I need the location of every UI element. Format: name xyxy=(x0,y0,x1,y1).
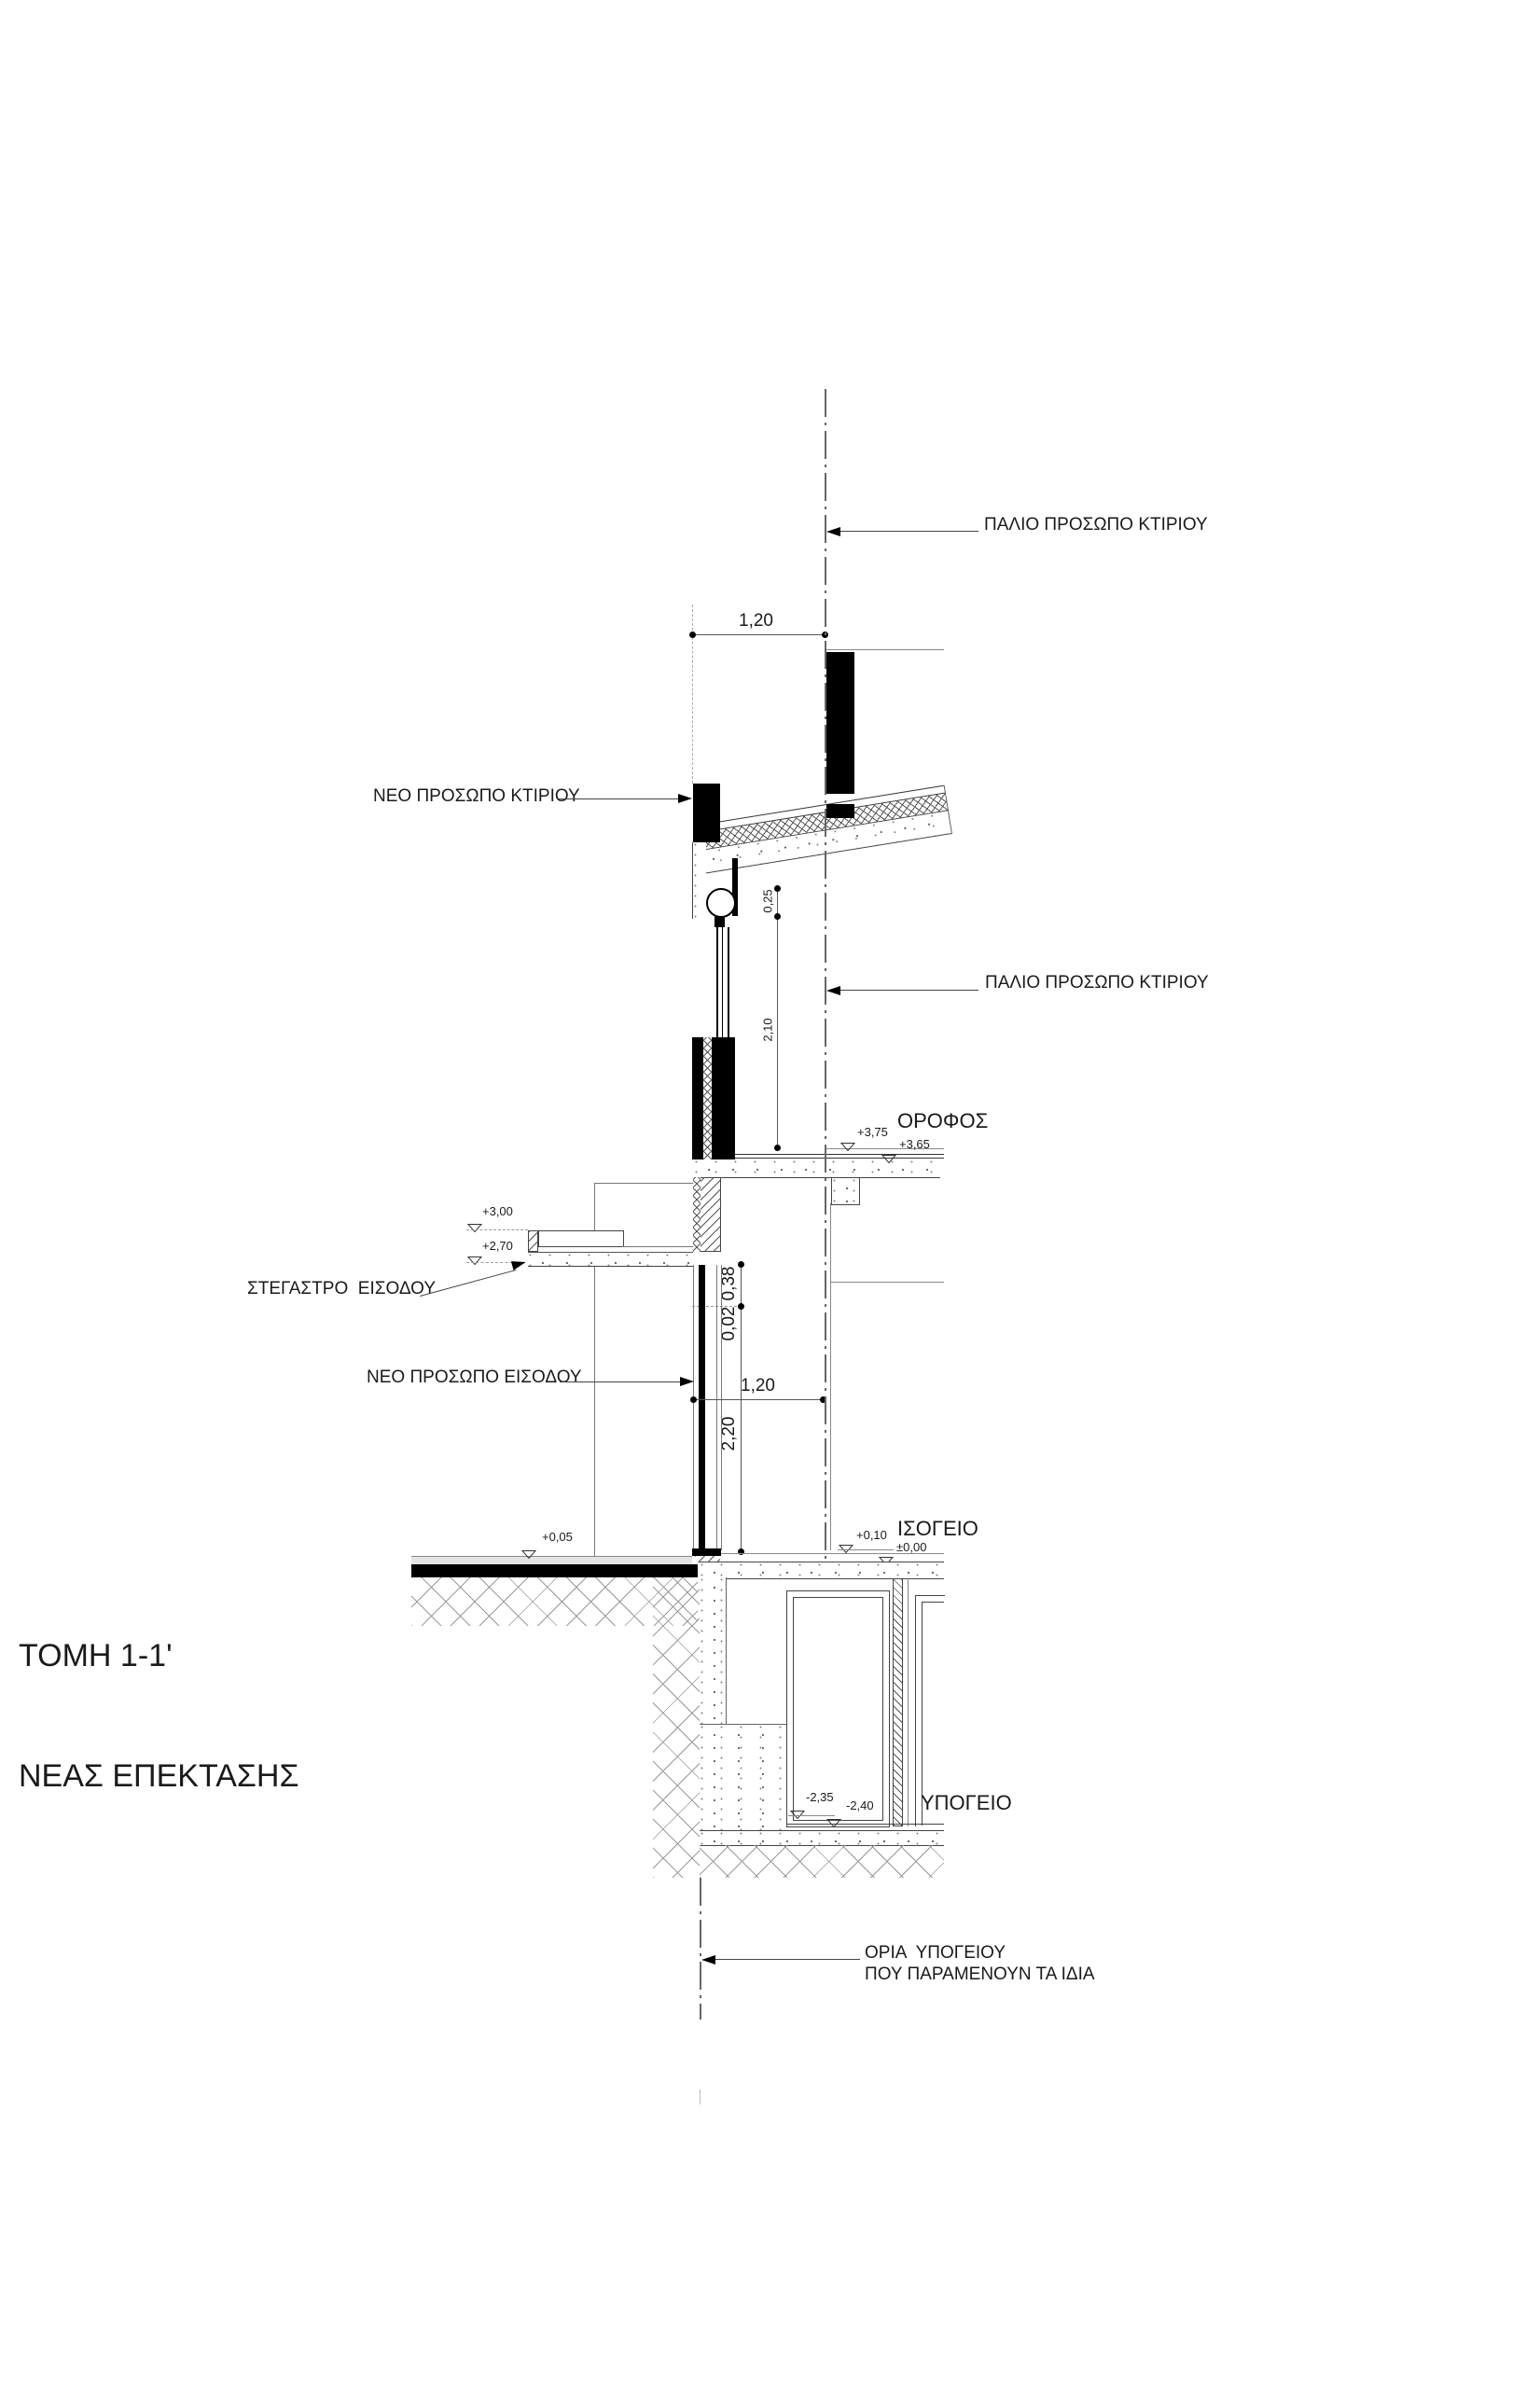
window-glazing xyxy=(716,927,729,1037)
level-dashed-line xyxy=(466,1229,528,1230)
leader-arrowhead-icon xyxy=(511,1257,527,1270)
dim-dot xyxy=(774,913,781,920)
label-storey-upper: ΟΡΟΦΟΣ xyxy=(897,1109,988,1133)
parapet-section xyxy=(693,784,720,842)
window-top-frame xyxy=(715,916,725,927)
dim-line-mid xyxy=(693,1399,825,1400)
new-wall-section xyxy=(692,1037,735,1159)
canopy-fascia xyxy=(538,1230,624,1247)
dim-text-038: 0,38 xyxy=(719,1267,740,1301)
leader-arrowhead-left-icon xyxy=(826,527,840,536)
label-entrance-canopy: ΣΤΕΓΑΣΤΡΟ ΕΙΣΟΔΟΥ xyxy=(247,1279,436,1299)
level-mark-icon xyxy=(826,1815,841,1824)
old-wall-top-line xyxy=(826,649,944,650)
basement-partition-wall xyxy=(893,1578,903,1826)
dim-dot xyxy=(689,632,696,638)
basement-room2-inner-top xyxy=(922,1602,944,1603)
leader-line xyxy=(840,531,978,532)
basement-partition-edge xyxy=(908,1578,909,1826)
label-storey-ground: ΙΣΟΓΕΙΟ xyxy=(897,1517,978,1541)
level-text-005: +0,05 xyxy=(542,1530,573,1544)
dim-text-top-offset: 1,20 xyxy=(739,611,773,632)
label-new-face-entrance: ΝΕΟ ΠΡΟΣΩΠΟ ΕΙΣΟΔΟΥ xyxy=(367,1368,582,1388)
dim-text-roller: 0,25 xyxy=(761,889,775,912)
drawing-title-line1: ΤΟΜΗ 1-1' xyxy=(19,1636,298,1676)
entrance-wall-outline-top xyxy=(594,1183,693,1184)
entrance-beam-insulation xyxy=(693,1177,701,1252)
label-new-face-building: ΝΕΟ ΠΡΟΣΩΠΟ ΚΤΙΡΙΟΥ xyxy=(373,786,580,807)
drawing-title-line2: ΝΕΑΣ ΕΠΕΚΤΑΣΗΣ xyxy=(19,1756,298,1797)
level-mark-icon xyxy=(840,1139,855,1147)
drawing-sheet: ΠΑΛΙΟ ΠΡΟΣΩΠΟ ΚΤΙΡΙΟΥ 1,20 0,25 2,10 ΠΑΛ… xyxy=(0,0,1540,2388)
old-interior-wall-line xyxy=(830,1203,831,1550)
dim-dot xyxy=(774,1145,781,1151)
level-mark-icon xyxy=(790,1807,805,1815)
exterior-slab xyxy=(411,1564,698,1577)
canopy-slab xyxy=(528,1252,693,1267)
dim-text-entrance-offset: 1,20 xyxy=(741,1376,775,1396)
entrance-front-outline xyxy=(594,1265,595,1556)
leader-line xyxy=(560,1381,681,1382)
basement-room1-inner xyxy=(793,1597,883,1821)
leader-arrowhead-left-icon xyxy=(701,1955,715,1965)
entrance-frame-line2 xyxy=(716,1265,717,1550)
canopy-soffit-line xyxy=(622,1246,693,1247)
label-basement-limits-line2: ΠΟΥ ΠΑΡΑΜΕΝΟΥΝ ΤΑ ΙΔΙΑ xyxy=(865,1965,1095,1985)
level-mark-icon xyxy=(881,1151,896,1159)
leader-line xyxy=(840,990,978,991)
basement-boundary-line xyxy=(700,1878,701,2020)
level-mark-icon xyxy=(521,1547,536,1555)
level-text-375: +3,75 xyxy=(857,1125,888,1139)
label-basement-limits-line1: ΟΡΙΑ ΥΠΟΓΕΙΟΥ xyxy=(865,1943,1006,1964)
canopy-end-cap xyxy=(528,1230,538,1252)
dim-line-window xyxy=(777,888,778,1148)
level-mark-icon xyxy=(467,1253,482,1261)
dim-text-002: 0,02 xyxy=(719,1307,740,1341)
ground-hatch-bottom xyxy=(700,1845,944,1878)
leader-line xyxy=(715,1959,860,1960)
basement-wall-upper xyxy=(700,1577,727,1724)
upper-slab-concrete xyxy=(694,1159,940,1178)
floor-finish-line-ground xyxy=(838,1549,894,1550)
old-column-section xyxy=(826,652,854,794)
level-mark-icon xyxy=(839,1541,853,1549)
leader-arrowhead-right-icon xyxy=(680,1377,694,1386)
label-old-face-mid: ΠΑΛΙΟ ΠΡΟΣΩΠΟ ΚΤΙΡΙΟΥ xyxy=(985,973,1209,993)
basement-floor-line xyxy=(786,1824,944,1825)
dim-dot xyxy=(690,1396,697,1403)
level-text-m240: -2,40 xyxy=(846,1798,874,1812)
dim-dot xyxy=(774,885,781,892)
roller-blind-box-icon xyxy=(706,888,736,918)
drawing-title: ΤΟΜΗ 1-1' ΝΕΑΣ ΕΠΕΚΤΑΣΗΣ xyxy=(19,1556,298,1877)
ground-hatch-deep xyxy=(653,1577,700,1878)
entrance-glazing-section xyxy=(699,1265,705,1550)
leader-arrowhead-right-icon xyxy=(678,794,692,803)
ground-slab-finish-line xyxy=(721,1553,944,1554)
level-text-300: +3,00 xyxy=(482,1204,513,1218)
new-wall-insulation-strip xyxy=(703,1037,712,1159)
level-text-365: +3,65 xyxy=(899,1137,930,1151)
level-text-010: +0,10 xyxy=(856,1528,887,1542)
basement-wall-lower xyxy=(700,1724,786,1831)
ground-slab-concrete xyxy=(700,1562,944,1579)
entrance-wall-outline xyxy=(594,1183,595,1230)
wall-strip-below-roof xyxy=(692,842,706,919)
dim-text-door-height: 2,20 xyxy=(719,1417,740,1451)
level-text-m235: -2,35 xyxy=(806,1790,834,1804)
entrance-threshold xyxy=(692,1548,721,1556)
dim-text-window-height: 2,10 xyxy=(761,1018,775,1041)
old-column-between-layers xyxy=(826,804,854,818)
old-interior-ceiling-line xyxy=(830,1282,944,1283)
level-text-270: +2,70 xyxy=(482,1239,513,1253)
centerline-old-face xyxy=(825,389,826,1562)
level-mark-icon xyxy=(879,1553,894,1562)
leader-arrowhead-left-icon xyxy=(826,986,840,995)
basement-boundary-tick xyxy=(700,2089,701,2104)
entrance-frame-line3 xyxy=(721,1265,722,1550)
level-mark-icon xyxy=(467,1220,482,1229)
upper-slab-beam xyxy=(831,1177,860,1205)
dim-line-top xyxy=(692,634,826,635)
basement-floor-slab xyxy=(700,1830,944,1846)
leader-line xyxy=(558,798,679,799)
level-text-zero: ±0,00 xyxy=(896,1540,926,1554)
label-old-face-top: ΠΑΛΙΟ ΠΡΟΣΩΠΟ ΚΤΙΡΙΟΥ xyxy=(984,515,1208,535)
label-storey-basement: ΥΠΟΓΕΙΟ xyxy=(921,1791,1012,1815)
entrance-frame-line xyxy=(693,1265,694,1550)
